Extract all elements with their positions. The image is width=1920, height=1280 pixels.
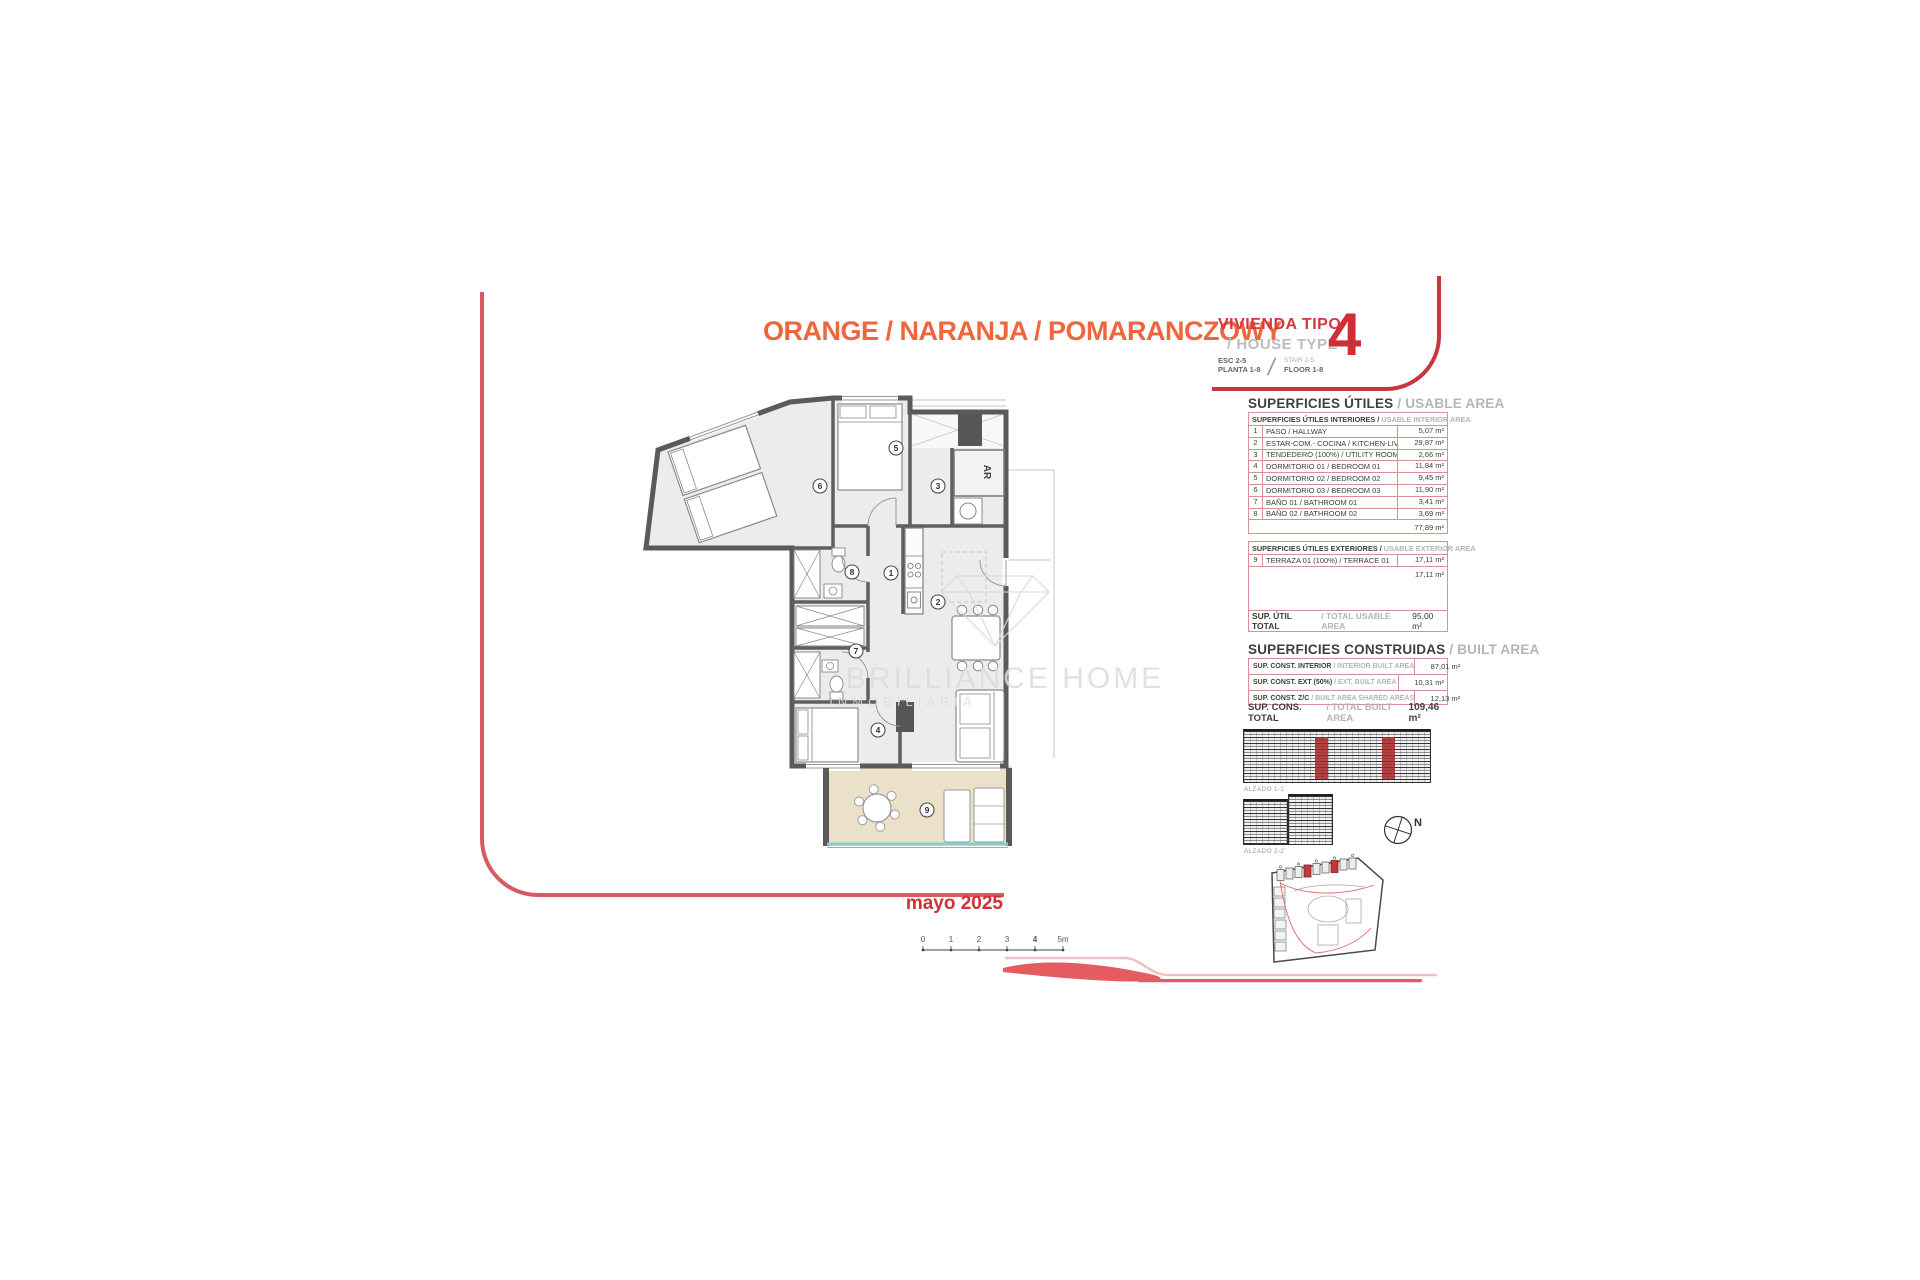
- svg-text:2: 2: [936, 597, 941, 607]
- floor-label: FLOOR 1-8: [1284, 365, 1323, 374]
- svg-text:1: 1: [949, 935, 954, 944]
- kitchen-counter: [905, 528, 923, 614]
- stair-floor-label: STAIR 2-5 FLOOR 1-8: [1284, 356, 1323, 374]
- room-number: 6: [813, 479, 827, 493]
- svg-text:8: 8: [850, 567, 855, 577]
- room-number: 9: [920, 803, 934, 817]
- room-number: 5: [889, 441, 903, 455]
- room-number: 3: [931, 479, 945, 493]
- plan-sheet: ORANGE / NARANJA / POMARANCZOWY VIVIENDA…: [0, 0, 1920, 1280]
- svg-text:9: 9: [925, 805, 930, 815]
- table-row: 5DORMITORIO 02 / BEDROOM 029,45 m²: [1249, 473, 1447, 485]
- svg-text:1: 1: [889, 568, 894, 578]
- table-row: SUP. CONST. INTERIOR / INTERIOR BUILT AR…: [1249, 659, 1447, 675]
- table-row: 9TERRAZA 01 (100%) / TERRACE 0117,11 m²: [1249, 555, 1447, 567]
- vivienda-tipo-label: VIVIENDA TIPO: [1218, 316, 1341, 334]
- svg-text:3: 3: [1005, 935, 1010, 944]
- room-number: 1: [884, 566, 898, 580]
- table-row: 4DORMITORIO 01 / BEDROOM 0111,84 m²: [1249, 461, 1447, 473]
- ar-closet-label: AR: [981, 465, 992, 480]
- room-number: 8: [845, 565, 859, 579]
- highlight-strip: [1382, 737, 1395, 779]
- shaft: [958, 414, 982, 446]
- north-label: N: [1414, 817, 1422, 829]
- svg-text:2: 2: [977, 935, 982, 944]
- usable-total-value: 95,00 m²: [1412, 611, 1444, 631]
- watermark-text-1: BRILLIANCE HOME: [846, 662, 1160, 695]
- svg-text:3: 3: [936, 481, 941, 491]
- built-total-value: 109,46 m²: [1409, 702, 1448, 724]
- elevation-2-drawing-right: [1288, 794, 1333, 845]
- north-arrow: N: [1374, 804, 1430, 854]
- usable-exterior-table: SUPERFICIES ÚTILES EXTERIORES / USABLE E…: [1248, 541, 1448, 611]
- interior-subtotal: 77,89 m²: [1249, 523, 1447, 532]
- exterior-subtotal: 17,11 m²: [1249, 570, 1447, 579]
- page-title: ORANGE / NARANJA / POMARANCZOWY: [763, 316, 1282, 347]
- planta-label: PLANTA 1-8: [1218, 365, 1261, 374]
- usable-exterior-header: SUPERFICIES ÚTILES EXTERIORES / USABLE E…: [1249, 542, 1447, 555]
- elevation-2-drawing-left: [1243, 799, 1288, 845]
- watermark-text-2: INMOBILIARIA: [829, 694, 976, 709]
- elevation-1-drawing: [1243, 729, 1431, 783]
- plan-date: mayo 2025: [903, 893, 1003, 915]
- esc-planta-label: ESC 2-5 PLANTA 1-8: [1218, 356, 1261, 374]
- usable-total-row: SUP. ÚTIL TOTAL / TOTAL USABLE AREA 95,0…: [1248, 610, 1448, 632]
- table-row: SUP. CONST. EXT (50%) / EXT. BUILT AREA1…: [1249, 675, 1447, 691]
- room-number: 7: [849, 644, 863, 658]
- esc-label: ESC 2-5: [1218, 356, 1261, 365]
- svg-text:0: 0: [921, 935, 926, 944]
- floor-plan: AR: [600, 388, 1160, 908]
- usable-area-title: SUPERFICIES ÚTILES / USABLE AREA: [1248, 396, 1504, 411]
- highlight-strip: [1315, 737, 1328, 779]
- table-row: 1PASO / HALLWAY5,07 m²: [1249, 426, 1447, 438]
- svg-text:5m: 5m: [1057, 935, 1068, 944]
- house-type-number: 4: [1328, 300, 1361, 369]
- svg-text:4: 4: [1033, 935, 1038, 944]
- stair-label: STAIR 2-5: [1284, 356, 1323, 365]
- table-row: 6DORMITORIO 03 / BEDROOM 0311,90 m²: [1249, 485, 1447, 497]
- wardrobes: [796, 606, 864, 646]
- swoosh-graphic: [1000, 948, 1465, 993]
- highlighted-unit: [1331, 861, 1338, 873]
- scale-ticks: 0 1 2 3 4 5m: [921, 935, 1069, 944]
- highlighted-unit: [1304, 865, 1311, 877]
- usable-interior-table: SUPERFICIES ÚTILES INTERIORES / USABLE I…: [1248, 412, 1448, 534]
- elevation-1-label: ALZADO 1-1': [1244, 786, 1286, 793]
- room-number: 4: [871, 723, 885, 737]
- svg-text:6: 6: [818, 481, 823, 491]
- table-row: 7BAÑO 01 / BATHROOM 013,41 m²: [1249, 497, 1447, 509]
- usable-interior-header: SUPERFICIES ÚTILES INTERIORES / USABLE I…: [1249, 413, 1447, 426]
- table-row: 2ESTAR-COM.- COCINA / KITCHEN-LIVING29,8…: [1249, 438, 1447, 450]
- svg-text:5: 5: [894, 443, 899, 453]
- table-row: 3TENDEDERO (100%) / UTILITY ROOM2,66 m²: [1249, 450, 1447, 462]
- room-number: 2: [931, 595, 945, 609]
- built-area-table: SUP. CONST. INTERIOR / INTERIOR BUILT AR…: [1248, 658, 1448, 705]
- house-type-label: / HOUSE TYPE: [1227, 336, 1338, 353]
- bed-double: [796, 708, 858, 762]
- svg-text:4: 4: [876, 725, 881, 735]
- built-area-title: SUPERFICIES CONSTRUIDAS / BUILT AREA: [1248, 642, 1539, 657]
- table-row: 8BAÑO 02 / BATHROOM 023,69 m²: [1249, 509, 1447, 521]
- built-total-row: SUP. CONS. TOTAL / TOTAL BUILT AREA 109,…: [1248, 705, 1448, 721]
- svg-text:7: 7: [854, 646, 859, 656]
